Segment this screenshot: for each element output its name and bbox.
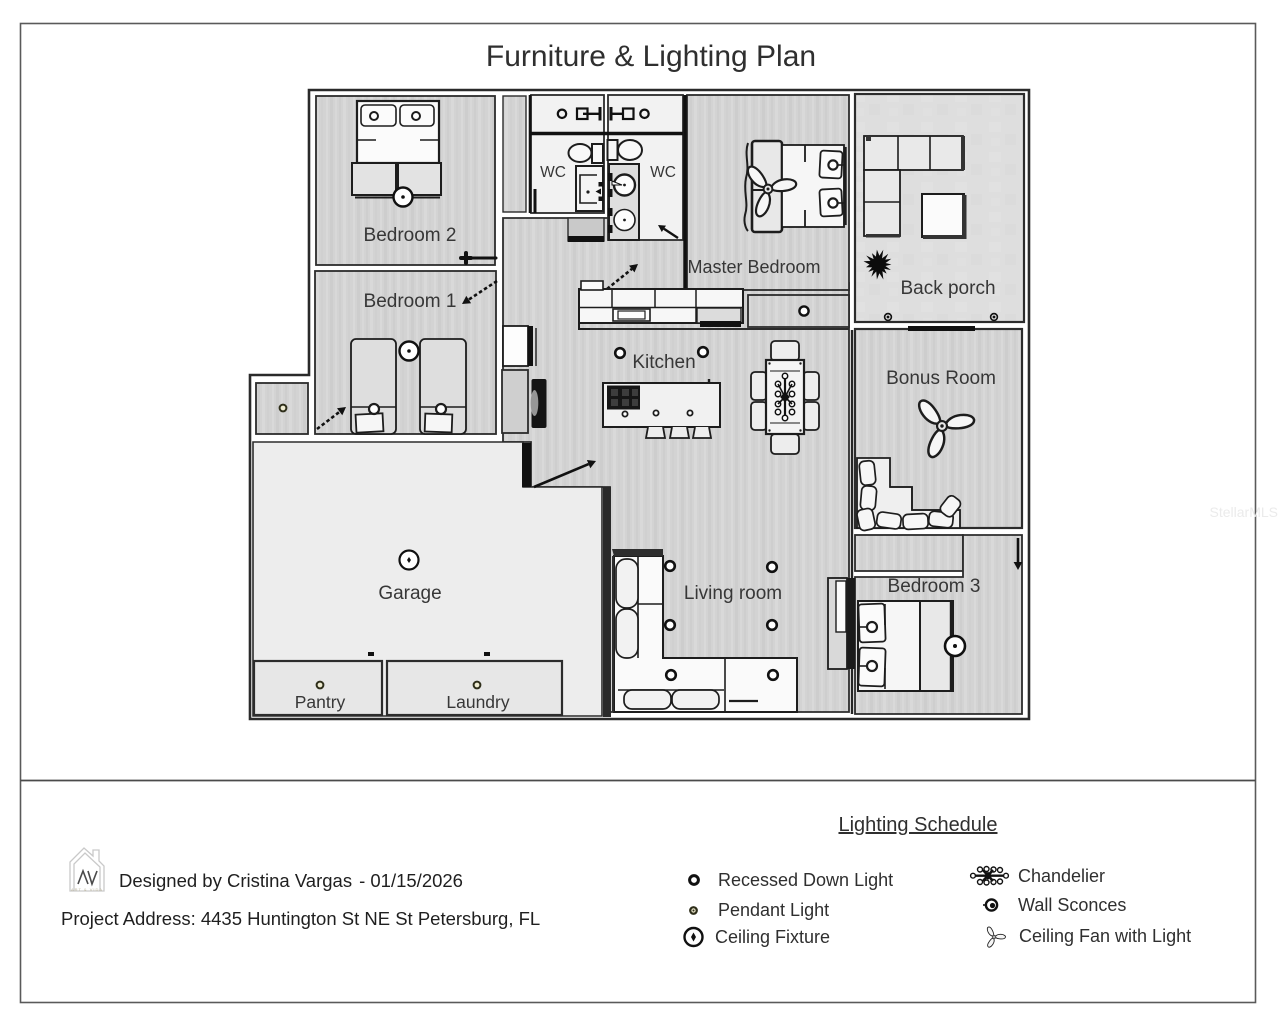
svg-text:Bedroom 1: Bedroom 1 (364, 291, 457, 312)
svg-text:Garage: Garage (378, 583, 441, 604)
svg-text:WC: WC (650, 164, 676, 181)
svg-text:ART & VIDA: ART & VIDA (71, 887, 103, 892)
svg-text:Bonus Room: Bonus Room (886, 368, 996, 389)
svg-text:Project Address: 4435 Huntingt: Project Address: 4435 Huntington St NE S… (61, 908, 540, 929)
svg-text:Pantry: Pantry (295, 692, 346, 712)
svg-text:Pendant Light: Pendant Light (718, 900, 829, 920)
svg-text:Furniture & Lighting Plan: Furniture & Lighting Plan (486, 40, 816, 73)
svg-text:Bedroom 2: Bedroom 2 (364, 225, 457, 246)
svg-text:Ceiling Fixture: Ceiling Fixture (715, 927, 830, 947)
svg-text:Kitchen: Kitchen (632, 352, 695, 373)
svg-text:Back porch: Back porch (900, 278, 995, 299)
svg-text:StellarMLS: StellarMLS (1210, 504, 1278, 520)
svg-text:Chandelier: Chandelier (1018, 866, 1105, 886)
svg-text:Ceiling Fan with Light: Ceiling Fan with Light (1019, 926, 1191, 946)
svg-text:WC: WC (540, 164, 566, 181)
svg-text:Recessed Down Light: Recessed Down Light (718, 870, 893, 890)
svg-text:Laundry: Laundry (446, 692, 509, 712)
svg-text:Bedroom 3: Bedroom 3 (888, 576, 981, 597)
svg-text:Master Bedroom: Master Bedroom (687, 257, 820, 277)
svg-text:Wall Sconces: Wall Sconces (1018, 895, 1126, 915)
svg-text:Living room: Living room (684, 583, 782, 604)
svg-text:Lighting Schedule: Lighting Schedule (838, 814, 997, 836)
svg-text:Designed by Cristina Vargas- 0: Designed by Cristina Vargas- 01/15/2026 (119, 870, 463, 891)
